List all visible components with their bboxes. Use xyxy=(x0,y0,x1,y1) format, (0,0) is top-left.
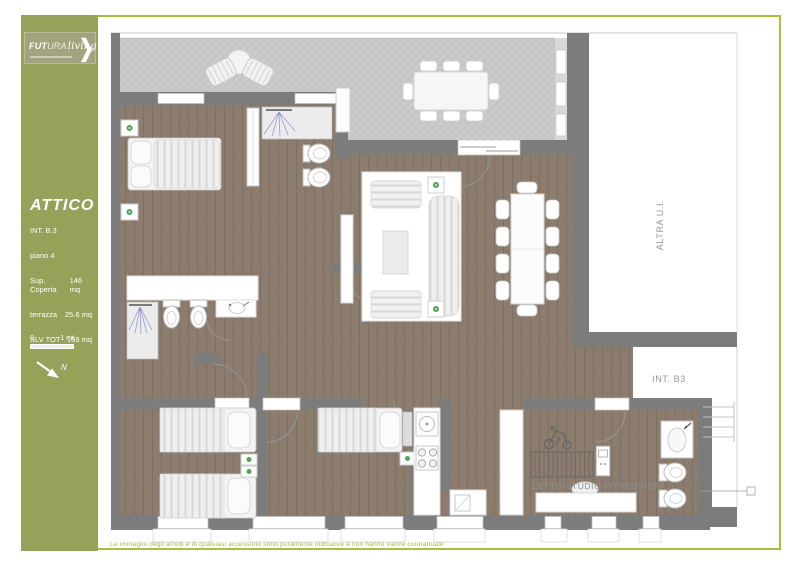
info-label: terrazza xyxy=(30,310,57,319)
logo: FUTURAliving ❯ xyxy=(24,32,96,64)
info-row: piano 4 xyxy=(30,251,92,260)
info-label: piano 4 xyxy=(30,251,55,260)
sidebar: FUTURAliving ❯ ATTICO INT. B.3 piano 4 S… xyxy=(21,15,98,551)
info-row: INT. B.3 xyxy=(30,226,92,235)
info-row: terrazza 25.6 mq xyxy=(30,310,92,319)
scale-one-mt: 1 mt xyxy=(60,335,74,342)
page: ALTRA U.I. INT. B3 LETTO/STUDIO/FITNESS/… xyxy=(0,0,800,565)
north-arrow: N xyxy=(32,355,74,387)
scale-labels: 0 1 mt xyxy=(30,335,74,342)
disclaimer-text: Le immagini degli arredi e di qualsiasi … xyxy=(110,541,444,548)
info-label: Sup. Coperta xyxy=(30,276,70,294)
scale-bar xyxy=(30,344,74,349)
logo-subtext-line xyxy=(30,56,72,58)
scale-zero: 0 xyxy=(30,335,34,342)
scale-bar-block: 0 1 mt xyxy=(30,335,74,349)
chevron-right-icon: ❯ xyxy=(79,30,94,66)
north-label: N xyxy=(61,363,67,372)
info-value: 146 mq xyxy=(70,276,92,294)
info-label: INT. B.3 xyxy=(30,226,57,235)
info-value: 25.6 mq xyxy=(65,310,92,319)
info-row: Sup. Coperta 146 mq xyxy=(30,276,92,294)
brand-name-bold: FUT xyxy=(29,41,47,51)
unit-title: ATTICO xyxy=(30,197,94,215)
brand-name-light: URA xyxy=(47,41,67,51)
page-frame xyxy=(21,15,781,550)
